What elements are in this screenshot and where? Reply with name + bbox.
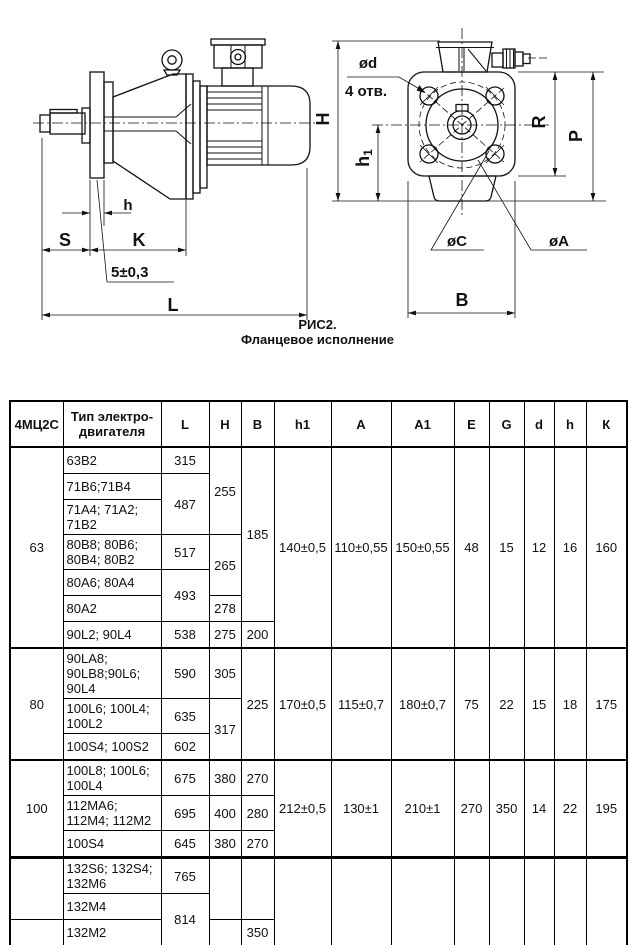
- col-header: H: [209, 401, 241, 447]
- cell-L: 315: [161, 447, 209, 474]
- dim-label-B: B: [456, 290, 469, 310]
- dim-label-L: L: [168, 295, 179, 315]
- cell-H: 380: [209, 831, 241, 858]
- cell-K: 160: [586, 447, 627, 648]
- cell-K: [586, 858, 627, 945]
- cell-h1: 212±0,5: [274, 760, 331, 857]
- table-row: 80 90LA8; 90LB8;90L6; 90L4 590 305 225 1…: [10, 648, 627, 699]
- dimensions-table-extension: 132S6; 132S4; 132M6 765 132M4 814 132M2 …: [9, 857, 628, 945]
- cell-G: [489, 858, 524, 945]
- cell-H: 278: [209, 596, 241, 622]
- cell-motor: 71В6;71В4: [63, 474, 161, 500]
- cell-d: 15: [524, 648, 554, 760]
- cell-L: 602: [161, 734, 209, 761]
- cell-B: 350: [241, 920, 274, 945]
- cell-A: 115±0,7: [331, 648, 391, 760]
- cell-size: [10, 920, 63, 945]
- technical-drawing: h S K L 5±0,3: [0, 0, 635, 360]
- dim-label-H: H: [313, 113, 333, 126]
- cell-G: 15: [489, 447, 524, 648]
- cell-H: 400: [209, 796, 241, 831]
- cell-B: 225: [241, 648, 274, 760]
- col-header: К: [586, 401, 627, 447]
- cell-motor: 80А6; 80А4: [63, 570, 161, 596]
- cell-B: 270: [241, 831, 274, 858]
- front-view-drawing: [408, 42, 530, 201]
- cell-L: 538: [161, 622, 209, 649]
- cell-motor: 132M2: [63, 920, 161, 945]
- col-header: A1: [391, 401, 454, 447]
- cell-motor: 100L6; 100L4; 100L2: [63, 699, 161, 734]
- cell-K: 175: [586, 648, 627, 760]
- cell-H: 317: [209, 699, 241, 761]
- cell-motor: 80А2: [63, 596, 161, 622]
- cell-motor: 132S6; 132S4; 132M6: [63, 858, 161, 894]
- dim-label-h: h: [123, 197, 132, 214]
- col-header: B: [241, 401, 274, 447]
- col-header: 4МЦ2С: [10, 401, 63, 447]
- cell-A1: 210±1: [391, 760, 454, 857]
- cell-motor: 63В2: [63, 447, 161, 474]
- col-header: h1: [274, 401, 331, 447]
- dim-label-diameter-A: øA: [549, 233, 569, 250]
- table-row: 100 100L8; 100L6; 100L4 675 380 270 212±…: [10, 760, 627, 796]
- holes-note-label: 4 отв.: [345, 83, 387, 100]
- side-view-drawing: [33, 39, 318, 199]
- cell-A: 130±1: [331, 760, 391, 857]
- table-row: 63 63В2 315 255 185 140±0,5 110±0,55 150…: [10, 447, 627, 474]
- cell-G: 22: [489, 648, 524, 760]
- cell-L: 765: [161, 858, 209, 894]
- cell-L: 517: [161, 535, 209, 570]
- cell-L: 695: [161, 796, 209, 831]
- cell-motor: 100L8; 100L6; 100L4: [63, 760, 161, 796]
- cell-d: [524, 858, 554, 945]
- cell-A: 110±0,55: [331, 447, 391, 648]
- cell-h: 18: [554, 648, 586, 760]
- cell-B: 185: [241, 447, 274, 622]
- cell-A1: 150±0,55: [391, 447, 454, 648]
- cell-h1: 170±0,5: [274, 648, 331, 760]
- cell-h1: [274, 858, 331, 945]
- cell-L: 493: [161, 570, 209, 622]
- cell-H: [209, 920, 241, 945]
- cell-H: 305: [209, 648, 241, 699]
- cell-size: 100: [10, 760, 63, 857]
- col-header: L: [161, 401, 209, 447]
- cell-B: 200: [241, 622, 274, 649]
- dim-label-diameter-d: ød: [359, 55, 377, 72]
- cell-motor: 90LA8; 90LB8;90L6; 90L4: [63, 648, 161, 699]
- cell-h: 16: [554, 447, 586, 648]
- cell-A: [331, 858, 391, 945]
- cell-H: 255: [209, 447, 241, 535]
- cell-L: 635: [161, 699, 209, 734]
- dimensions-table: 4МЦ2С Тип электро-двигателя L H B h1 A A…: [9, 400, 628, 909]
- cell-H: 380: [209, 760, 241, 796]
- cell-motor: 100S4; 100S2: [63, 734, 161, 761]
- cell-B: [241, 858, 274, 920]
- cell-h: [554, 858, 586, 945]
- table-row: 132S6; 132S4; 132M6 765: [10, 858, 627, 894]
- cell-d: 12: [524, 447, 554, 648]
- col-header: A: [331, 401, 391, 447]
- figure-caption: РИС2. Фланцевое исполнение: [0, 317, 635, 347]
- cell-H: [209, 858, 241, 920]
- cell-B: 280: [241, 796, 274, 831]
- figure-title: Фланцевое исполнение: [0, 332, 635, 347]
- header-row: 4МЦ2С Тип электро-двигателя L H B h1 A A…: [10, 401, 627, 447]
- cell-K: 195: [586, 760, 627, 857]
- col-header: G: [489, 401, 524, 447]
- cell-L: 814: [161, 894, 209, 945]
- dim-label-diameter-C: øC: [447, 233, 467, 250]
- cell-L: 487: [161, 474, 209, 535]
- col-header: Тип электро-двигателя: [63, 401, 161, 447]
- cell-d: 14: [524, 760, 554, 857]
- side-view-labels: h S K L 5±0,3: [59, 197, 179, 315]
- cell-E: [454, 858, 489, 945]
- cell-h1: 140±0,5: [274, 447, 331, 648]
- tolerance-label: 5±0,3: [111, 264, 148, 281]
- cell-size: 63: [10, 447, 63, 648]
- cell-L: 645: [161, 831, 209, 858]
- cell-E: 270: [454, 760, 489, 857]
- cell-motor: 90L2; 90L4: [63, 622, 161, 649]
- cell-L: 675: [161, 760, 209, 796]
- cell-size: 80: [10, 648, 63, 760]
- dim-label-P: P: [566, 130, 586, 142]
- cell-motor: 112MA6; 112M4; 112M2: [63, 796, 161, 831]
- cell-motor: 71А4; 71А2; 71В2: [63, 500, 161, 535]
- col-header: h: [554, 401, 586, 447]
- dim-label-S: S: [59, 230, 71, 250]
- cell-E: 75: [454, 648, 489, 760]
- front-view-labels: ød 4 отв. H h1 R P B øC øA: [313, 55, 586, 310]
- cell-B: 270: [241, 760, 274, 796]
- col-header: E: [454, 401, 489, 447]
- col-header: d: [524, 401, 554, 447]
- figure-number: РИС2.: [0, 317, 635, 332]
- cell-size: [10, 858, 63, 920]
- cell-h: 22: [554, 760, 586, 857]
- cell-motor: 100S4: [63, 831, 161, 858]
- catalog-page: h S K L 5±0,3: [0, 0, 635, 945]
- cell-H: 265: [209, 535, 241, 596]
- cell-A1: [391, 858, 454, 945]
- cell-L: 590: [161, 648, 209, 699]
- dim-label-h1: h1: [353, 149, 375, 167]
- cell-motor: 80В8; 80В6; 80В4; 80В2: [63, 535, 161, 570]
- cell-G: 350: [489, 760, 524, 857]
- cell-motor: 132M4: [63, 894, 161, 920]
- cell-H: 275: [209, 622, 241, 649]
- dim-label-K: K: [133, 230, 146, 250]
- cell-E: 48: [454, 447, 489, 648]
- cell-A1: 180±0,7: [391, 648, 454, 760]
- dim-label-R: R: [529, 116, 549, 129]
